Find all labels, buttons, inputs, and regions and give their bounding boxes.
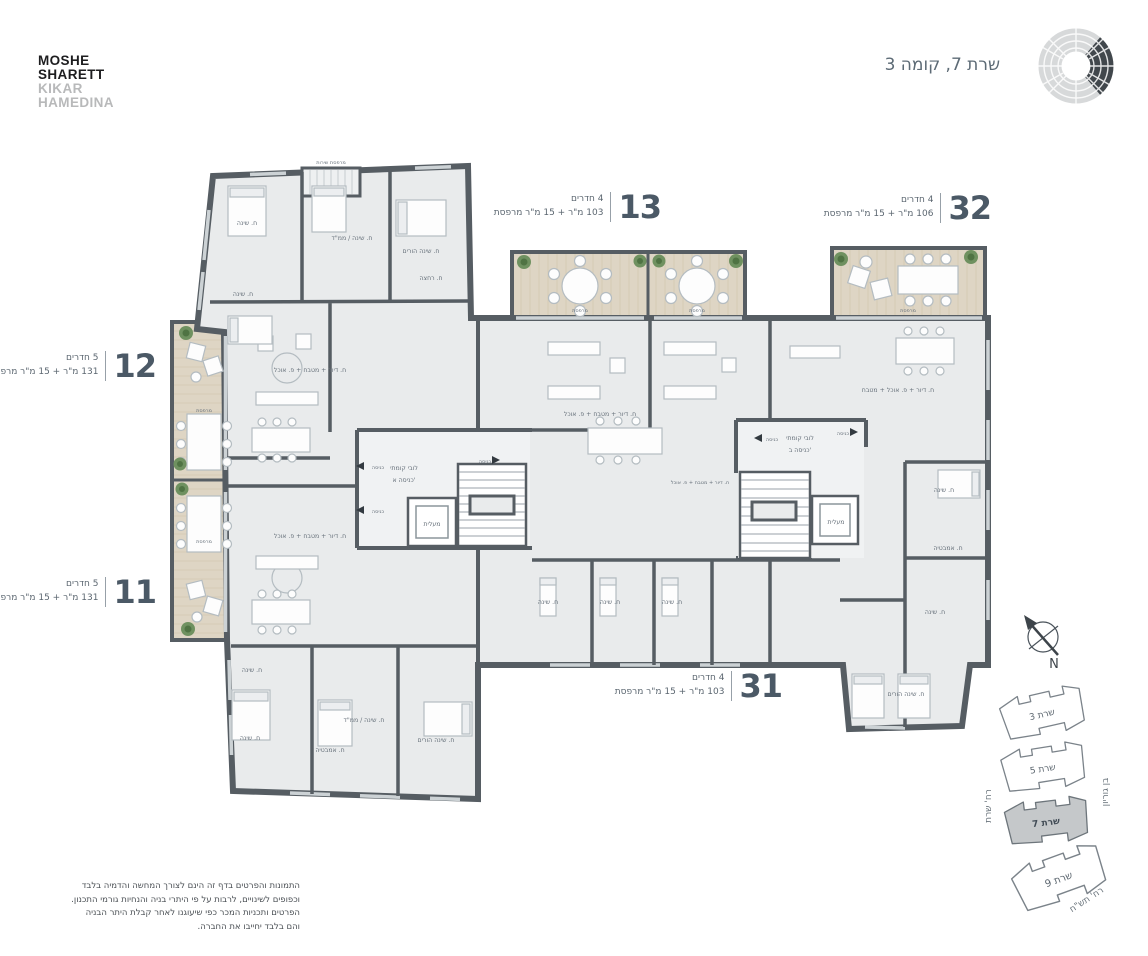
room-label: ח. שינה [934, 487, 954, 494]
compass: N [1024, 615, 1059, 672]
room-label: ח. דיור + מטבח + פ. אוכל [564, 411, 636, 418]
disclaimer-line: הפרטים ותכניות המכר כפי שיעוגנו לאחר קבל… [30, 907, 300, 921]
unit-number: 12 [113, 350, 156, 382]
room-label: ח. שינה הורים [418, 737, 455, 744]
unit-rooms: 4 חדרים [494, 193, 604, 207]
compass-north-label: N [1049, 657, 1059, 672]
room-label: ח. אמבטיה [933, 545, 962, 552]
room-label: ח. שינה [237, 220, 257, 227]
divider [610, 192, 611, 222]
room-label: ח. שינה [600, 599, 620, 606]
floor-title: שרת 7, קומה 3 [885, 55, 1000, 75]
room-label: כניסה [372, 465, 385, 471]
divider [940, 193, 941, 223]
room-label: כניסה [479, 459, 492, 465]
room-label: ח. שינה [925, 609, 945, 616]
room-label: מרפסת [689, 308, 705, 314]
core-a [356, 432, 530, 546]
room-label: כניסה [372, 509, 385, 515]
divider [105, 351, 106, 381]
room-label: ח. שינה הורים [888, 691, 925, 698]
key-plan: שרת 3 שרת 5 שרת 7 שרת 9 רח' שרת בן גוריו… [984, 683, 1111, 917]
floor-plan: ח. שינהח. שינה / ממ"דח. שינה הוריםח. רחצ… [0, 0, 1148, 956]
unit-label-31: 4 חדרים 103 מ"ר + 15 מ"ר מרפסת 31 [615, 670, 782, 702]
room-label: ח. דיור + מטבח + פ. אוכל [671, 480, 730, 486]
unit-rooms: 4 חדרים [615, 672, 725, 686]
room-label: כניסה א' [393, 477, 416, 484]
room-label: ח. שינה [242, 667, 262, 674]
unit-number: 13 [618, 191, 661, 223]
unit-label-32: 4 חדרים 106 מ"ר + 15 מ"ר מרפסת 32 [824, 192, 991, 224]
logo-line: KIKAR [38, 82, 114, 96]
room-label: ח. שינה [240, 735, 260, 742]
room-label: ח. דיור + מטבח + פ. אוכל [274, 533, 346, 540]
unit-number: 11 [113, 576, 156, 608]
room-label: לובי קומתי [786, 435, 814, 442]
room-label: מעלית [827, 519, 844, 526]
unit-number: 31 [739, 670, 782, 702]
room-label: כניסה ב' [789, 447, 812, 454]
unit-number: 32 [948, 192, 991, 224]
unit-rooms: 4 חדרים [824, 194, 934, 208]
room-label: ח. אמבטיה [315, 747, 344, 754]
room-label: מעלית [423, 521, 440, 528]
room-label: ח. שינה / ממ"ד [344, 717, 385, 724]
room-label: ח. שינה הורים [403, 248, 440, 255]
street-label-sharett: רח' שרת [984, 789, 994, 823]
unit-rooms: 5 חדרים [0, 578, 98, 592]
unit-label-11: 5 חדרים 131 מ"ר + 15 מ"ר מרפסת 11 [0, 576, 156, 608]
unit-label-13: 4 חדרים 103 מ"ר + 15 מ"ר מרפסת 13 [494, 191, 661, 223]
core-b [738, 422, 864, 558]
disclaimer-line: וכפופים לשינויים, לרבות על פי היתרי בניה… [30, 894, 300, 908]
room-label: כניסה [837, 431, 850, 437]
kikar-hamedina-logo-icon [1038, 28, 1114, 104]
project-logo: MOSHE SHARETT KIKAR HAMEDINA [38, 54, 114, 110]
room-label: ח. רחצה [419, 275, 442, 282]
room-label: מרפסת [900, 308, 916, 314]
unit-area: 131 מ"ר + 15 מ"ר מרפסת [0, 592, 98, 606]
room-label: לובי קומתי [390, 465, 418, 472]
room-label: מרפסת שירות [316, 160, 346, 166]
unit-area: 106 מ"ר + 15 מ"ר מרפסת [824, 208, 934, 222]
logo-line: MOSHE [38, 54, 114, 68]
unit-area: 103 מ"ר + 15 מ"ר מרפסת [494, 207, 604, 221]
unit-area: 131 מ"ר + 15 מ"ר מרפסת [0, 366, 98, 380]
unit-label-12: 5 חדרים 131 מ"ר + 15 מ"ר מרפסת 12 [0, 350, 156, 382]
room-label: ח. שינה / ממ"ד [332, 235, 373, 242]
disclaimer: התמונות והפרטים בדף זה הינם לצורך המחשה … [30, 880, 300, 934]
room-label: ח. דיור + מטבח + פ. אוכל [274, 367, 346, 374]
room-label: מרפסת [196, 539, 212, 545]
room-label: מרפסת [196, 408, 212, 414]
room-label: מרפסת [572, 308, 588, 314]
logo-line: SHARETT [38, 68, 114, 82]
logo-line: HAMEDINA [38, 96, 114, 110]
disclaimer-line: התמונות והפרטים בדף זה הינם לצורך המחשה … [30, 880, 300, 894]
room-label: כניסה [766, 437, 779, 443]
divider [731, 671, 732, 701]
street-label-ben-gurion: בן גוריון [1101, 778, 1111, 807]
disclaimer-line: והם בלבד יחייבו את החברה. [30, 921, 300, 935]
unit-rooms: 5 חדרים [0, 352, 98, 366]
room-label: ח. שינה [538, 599, 558, 606]
room-label: ח. שינה [662, 599, 682, 606]
room-label: ח. דיור + פ. אוכל + מטבח [862, 387, 934, 394]
divider [105, 577, 106, 607]
unit-area: 103 מ"ר + 15 מ"ר מרפסת [615, 686, 725, 700]
room-label: ח. שינה [233, 291, 253, 298]
